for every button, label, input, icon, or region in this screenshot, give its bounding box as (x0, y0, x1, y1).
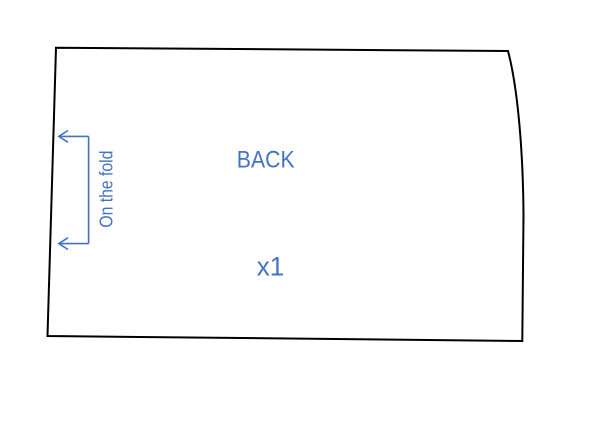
svg-text:x1: x1 (257, 252, 285, 282)
svg-text:BACK: BACK (237, 147, 295, 174)
svg-text:On the fold: On the fold (97, 151, 117, 228)
